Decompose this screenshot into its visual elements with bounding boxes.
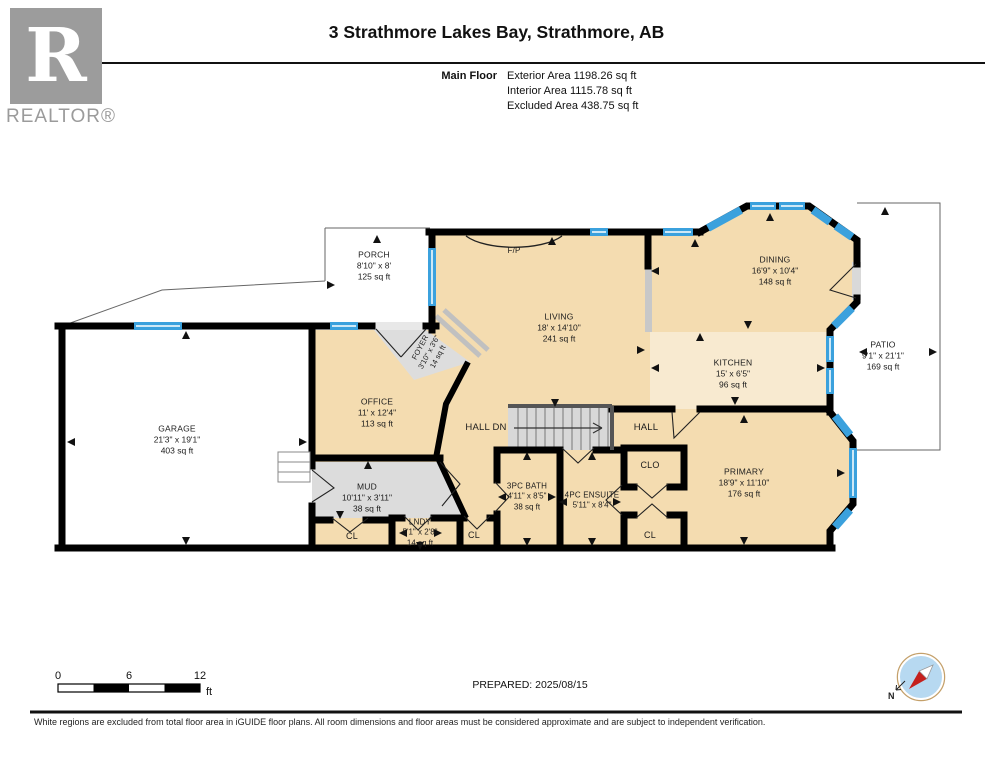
patio-door-gap (852, 262, 861, 300)
scale-bar (58, 684, 200, 692)
stairs (508, 404, 612, 450)
room-label-cl-left: CL (346, 531, 358, 543)
room-label-clo: CLO (640, 460, 659, 472)
stat-excluded-area: Excluded Area 438.75 sq ft (507, 100, 807, 112)
patio-outline (855, 203, 940, 450)
room-label-3pc-bath: 3PC BATH4'11" x 8'5"38 sq ft (507, 481, 547, 512)
room-label-primary: PRIMARY18'9" x 11'10"176 sq ft (719, 466, 770, 499)
scale-tick-12: 12 (194, 670, 206, 682)
room-label-living: LIVING18' x 14'10"241 sq ft (537, 311, 581, 344)
prepared-date: PREPARED: 2025/08/15 (380, 679, 680, 691)
scale-tick-0: 0 (55, 670, 61, 682)
stat-exterior-area: Exterior Area 1198.26 sq ft (507, 70, 807, 82)
garage-steps (278, 452, 310, 482)
room-label-hall-dn: HALL DN (465, 422, 506, 434)
scale-unit: ft (206, 686, 212, 698)
room-label-patio: PATIO9'1" x 21'1"169 sq ft (862, 339, 904, 372)
fireplace-label: F/P (507, 246, 520, 256)
room-label-hall: HALL (634, 422, 659, 434)
room-label-kitchen: KITCHEN15' x 6'5"96 sq ft (714, 357, 753, 390)
room-label-dining: DINING16'9" x 10'4"148 sq ft (752, 254, 799, 287)
room-label-cl-mid: CL (468, 530, 480, 542)
entry-door-gap (374, 322, 424, 330)
room-label-mud: MUD10'11" x 3'11"38 sq ft (342, 481, 392, 514)
floor-plan-drawing (0, 0, 993, 768)
cased-opening (645, 266, 652, 332)
room-label-porch: PORCH8'10" x 8'125 sq ft (357, 249, 391, 282)
room-label-4pc-ensuite: 4PC ENSUITE5'11" x 8'4" (565, 491, 620, 512)
page-title: 3 Strathmore Lakes Bay, Strathmore, AB (0, 22, 993, 43)
floor-plan-page: R REALTOR® 3 Strathmore Lakes Bay, Strat… (0, 0, 993, 768)
room-label-lndy: LNDY5'1" x 2'8"14 sq ft (403, 517, 438, 548)
room-label-cl-right: CL (644, 530, 656, 542)
stat-interior-area: Interior Area 1115.78 sq ft (507, 85, 807, 97)
compass-icon (896, 654, 945, 701)
scale-tick-6: 6 (126, 670, 132, 682)
realtor-logo-word: REALTOR® (6, 106, 118, 128)
compass-north-label: N (888, 691, 895, 701)
room-label-office: OFFICE11' x 12'4"113 sq ft (358, 396, 396, 429)
room-label-garage: GARAGE21'3" x 19'1"403 sq ft (154, 423, 201, 456)
floor-label: Main Floor (350, 70, 497, 82)
disclaimer-text: White regions are excluded from total fl… (34, 717, 964, 727)
